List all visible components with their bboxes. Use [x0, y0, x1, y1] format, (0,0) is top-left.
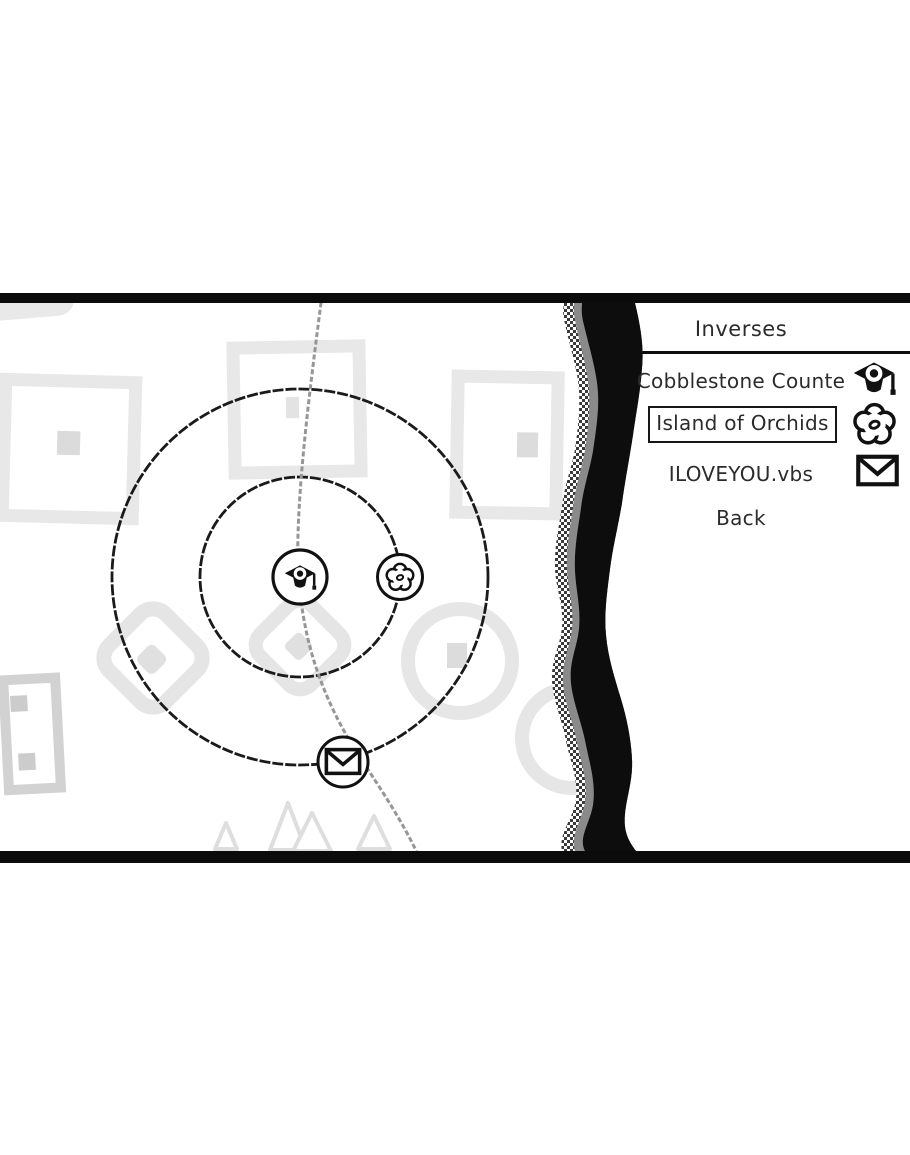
bg-diamond — [249, 594, 351, 696]
bg-mountains — [215, 803, 390, 851]
menu-item-island-of-orchids[interactable]: Island of Orchids — [648, 406, 837, 443]
letterbox-bottom-bar — [0, 851, 910, 863]
letterbox-top-bar — [0, 293, 910, 303]
game-page: Inverses Cobblestone Counte Island of Or… — [0, 0, 910, 1155]
bg-square — [233, 346, 361, 473]
bg-diamond — [96, 601, 209, 714]
menu-panel: Inverses Cobblestone Counte Island of Or… — [600, 303, 910, 851]
bg-corner-blob — [0, 303, 75, 323]
marker-envelope[interactable] — [318, 737, 368, 787]
envelope-icon[interactable] — [855, 454, 900, 487]
menu-title: Inverses — [610, 317, 872, 341]
flower-icon[interactable] — [851, 400, 898, 448]
marker-graduation-cap[interactable] — [273, 550, 327, 604]
menu-item-cobblestone[interactable]: Cobblestone Counte — [620, 369, 862, 393]
menu-item-label: Island of Orchids — [650, 408, 835, 439]
menu-item-back[interactable]: Back — [620, 506, 862, 530]
menu-item-iloveyou[interactable]: ILOVEYOU.vbs — [620, 462, 862, 486]
marker-flower[interactable] — [378, 555, 423, 600]
bg-fort-square — [3, 678, 61, 791]
graduation-cap-icon[interactable] — [849, 358, 899, 400]
menu-divider — [620, 351, 910, 354]
bg-circle — [408, 609, 512, 713]
bg-square — [2, 379, 136, 518]
envelope-icon — [326, 750, 359, 774]
game-viewport: Inverses Cobblestone Counte Island of Or… — [0, 303, 910, 851]
